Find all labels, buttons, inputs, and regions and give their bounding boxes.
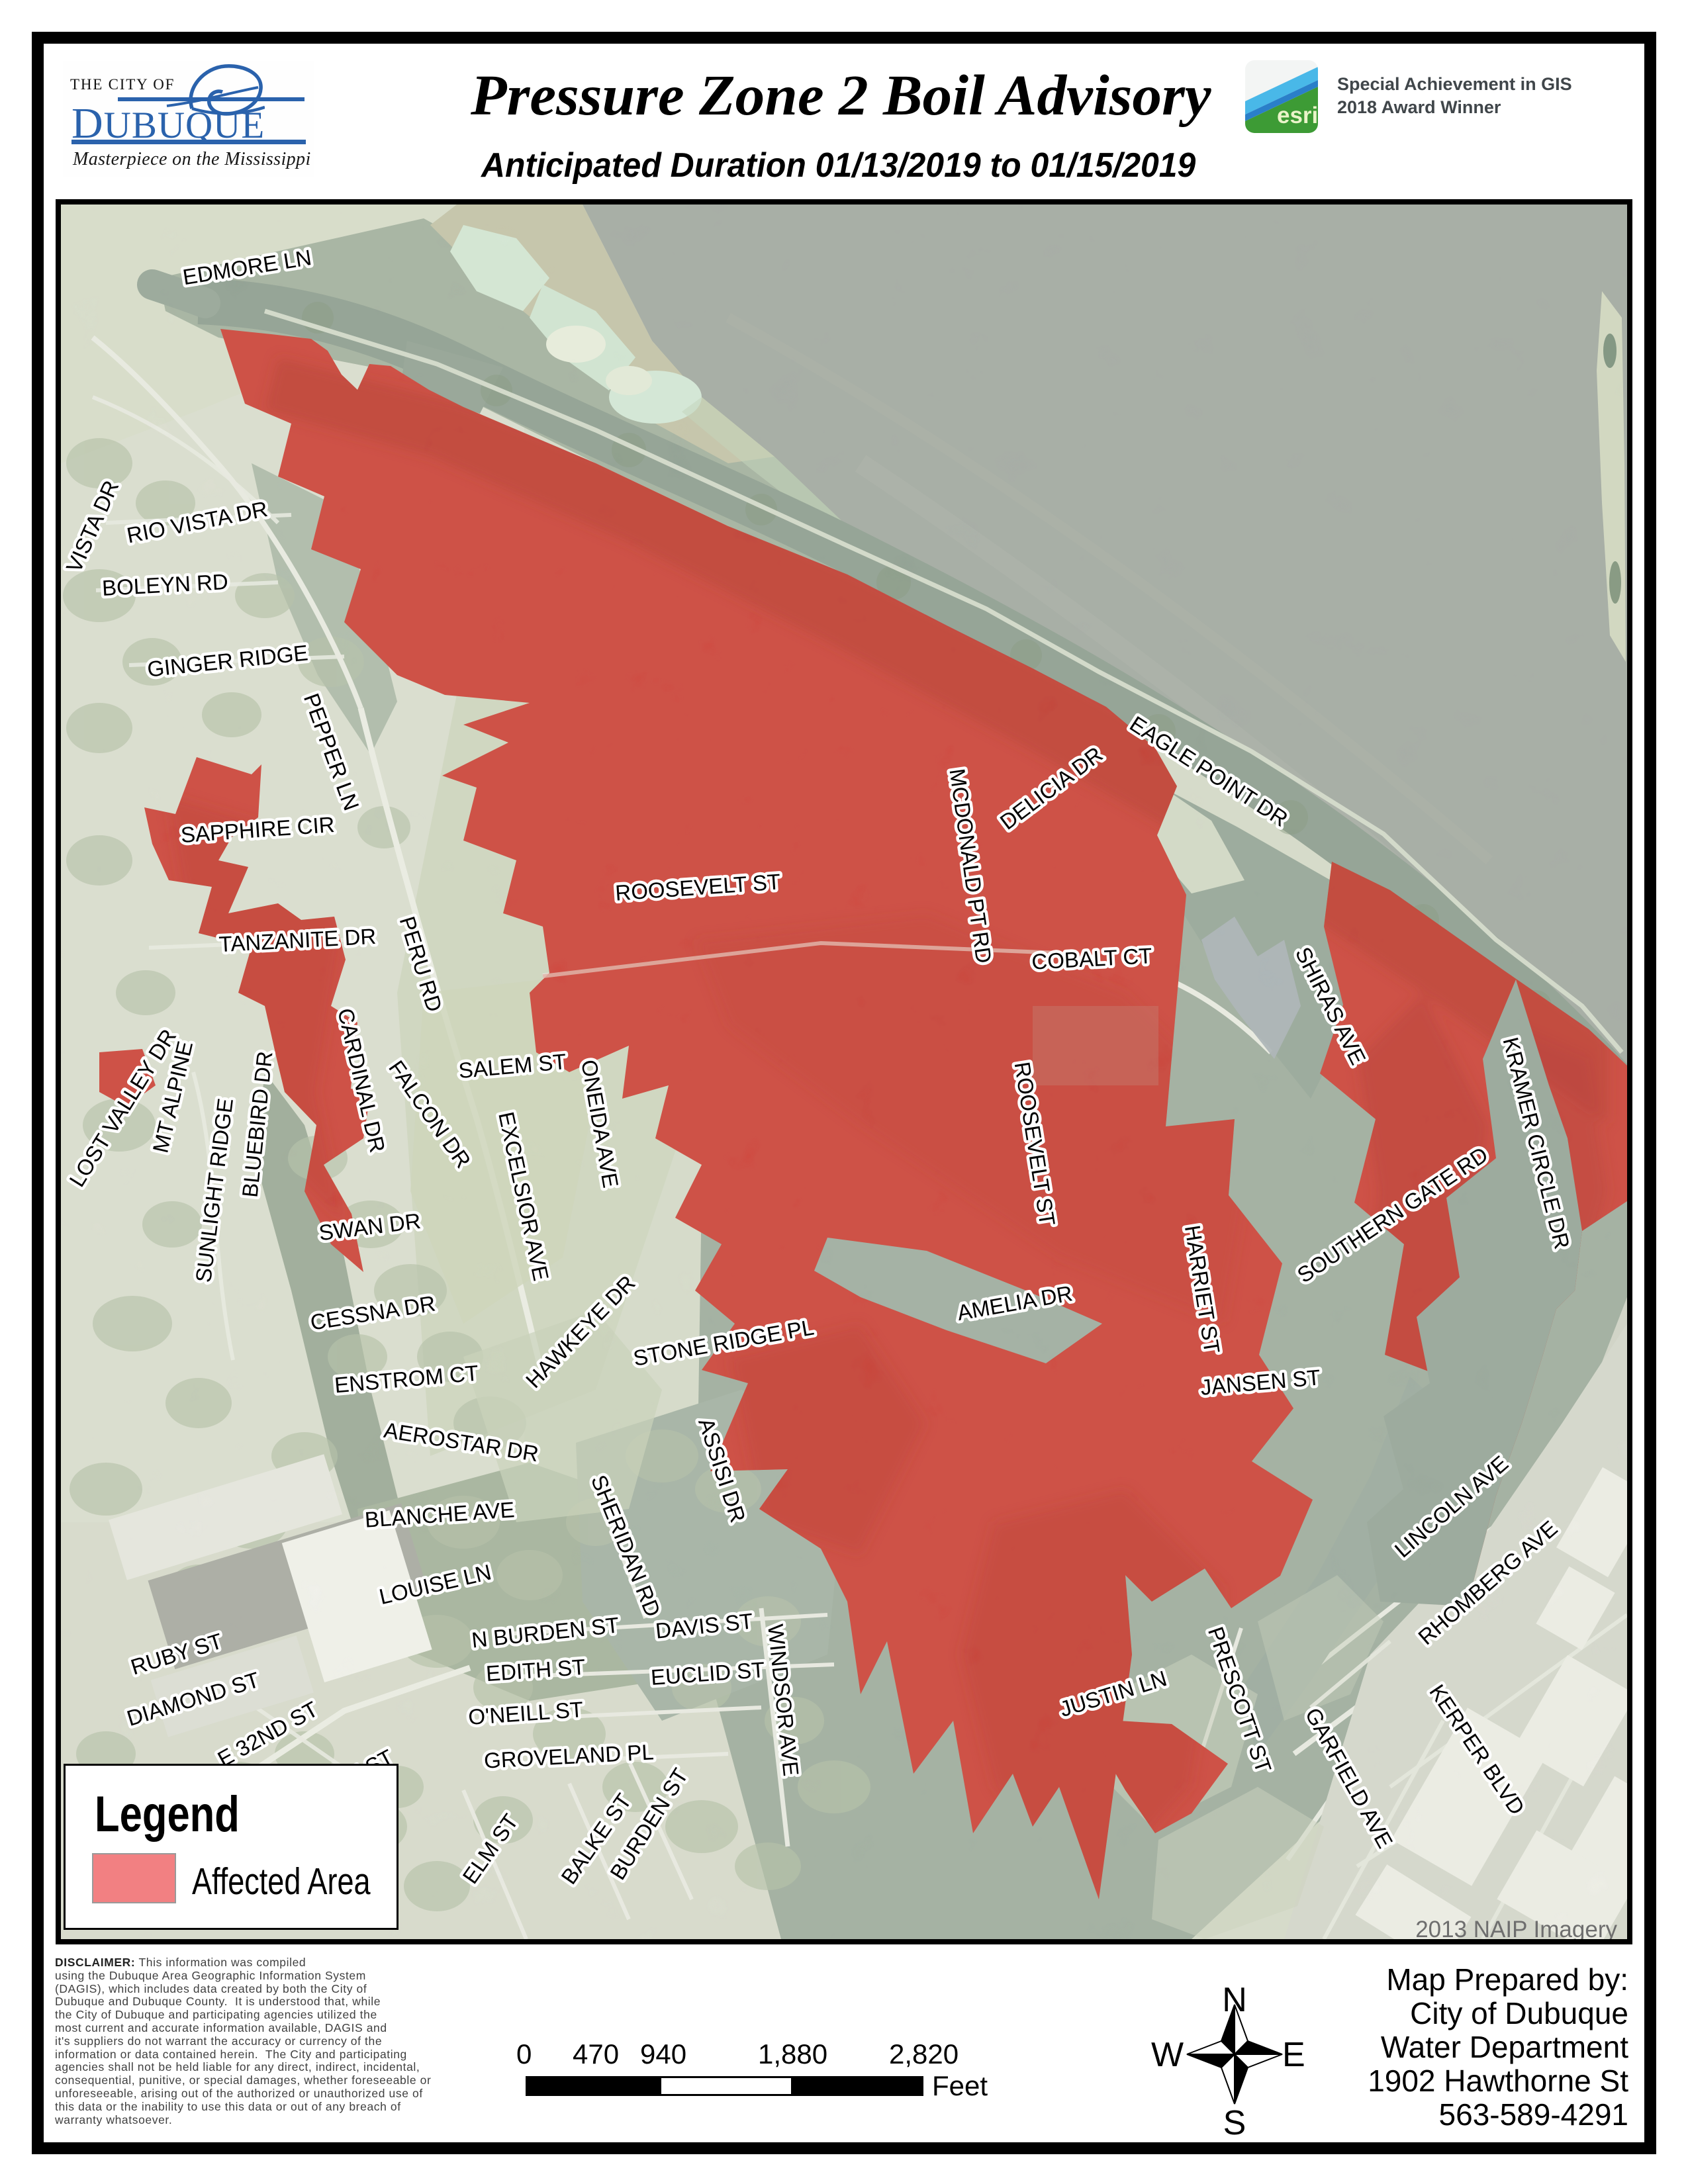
svg-text:2013 NAIP Imagery: 2013 NAIP Imagery [1415, 1917, 1617, 1939]
svg-text:S: S [1223, 2104, 1246, 2141]
svg-text:W: W [1151, 2036, 1184, 2074]
svg-text:esri: esri [1277, 103, 1318, 128]
